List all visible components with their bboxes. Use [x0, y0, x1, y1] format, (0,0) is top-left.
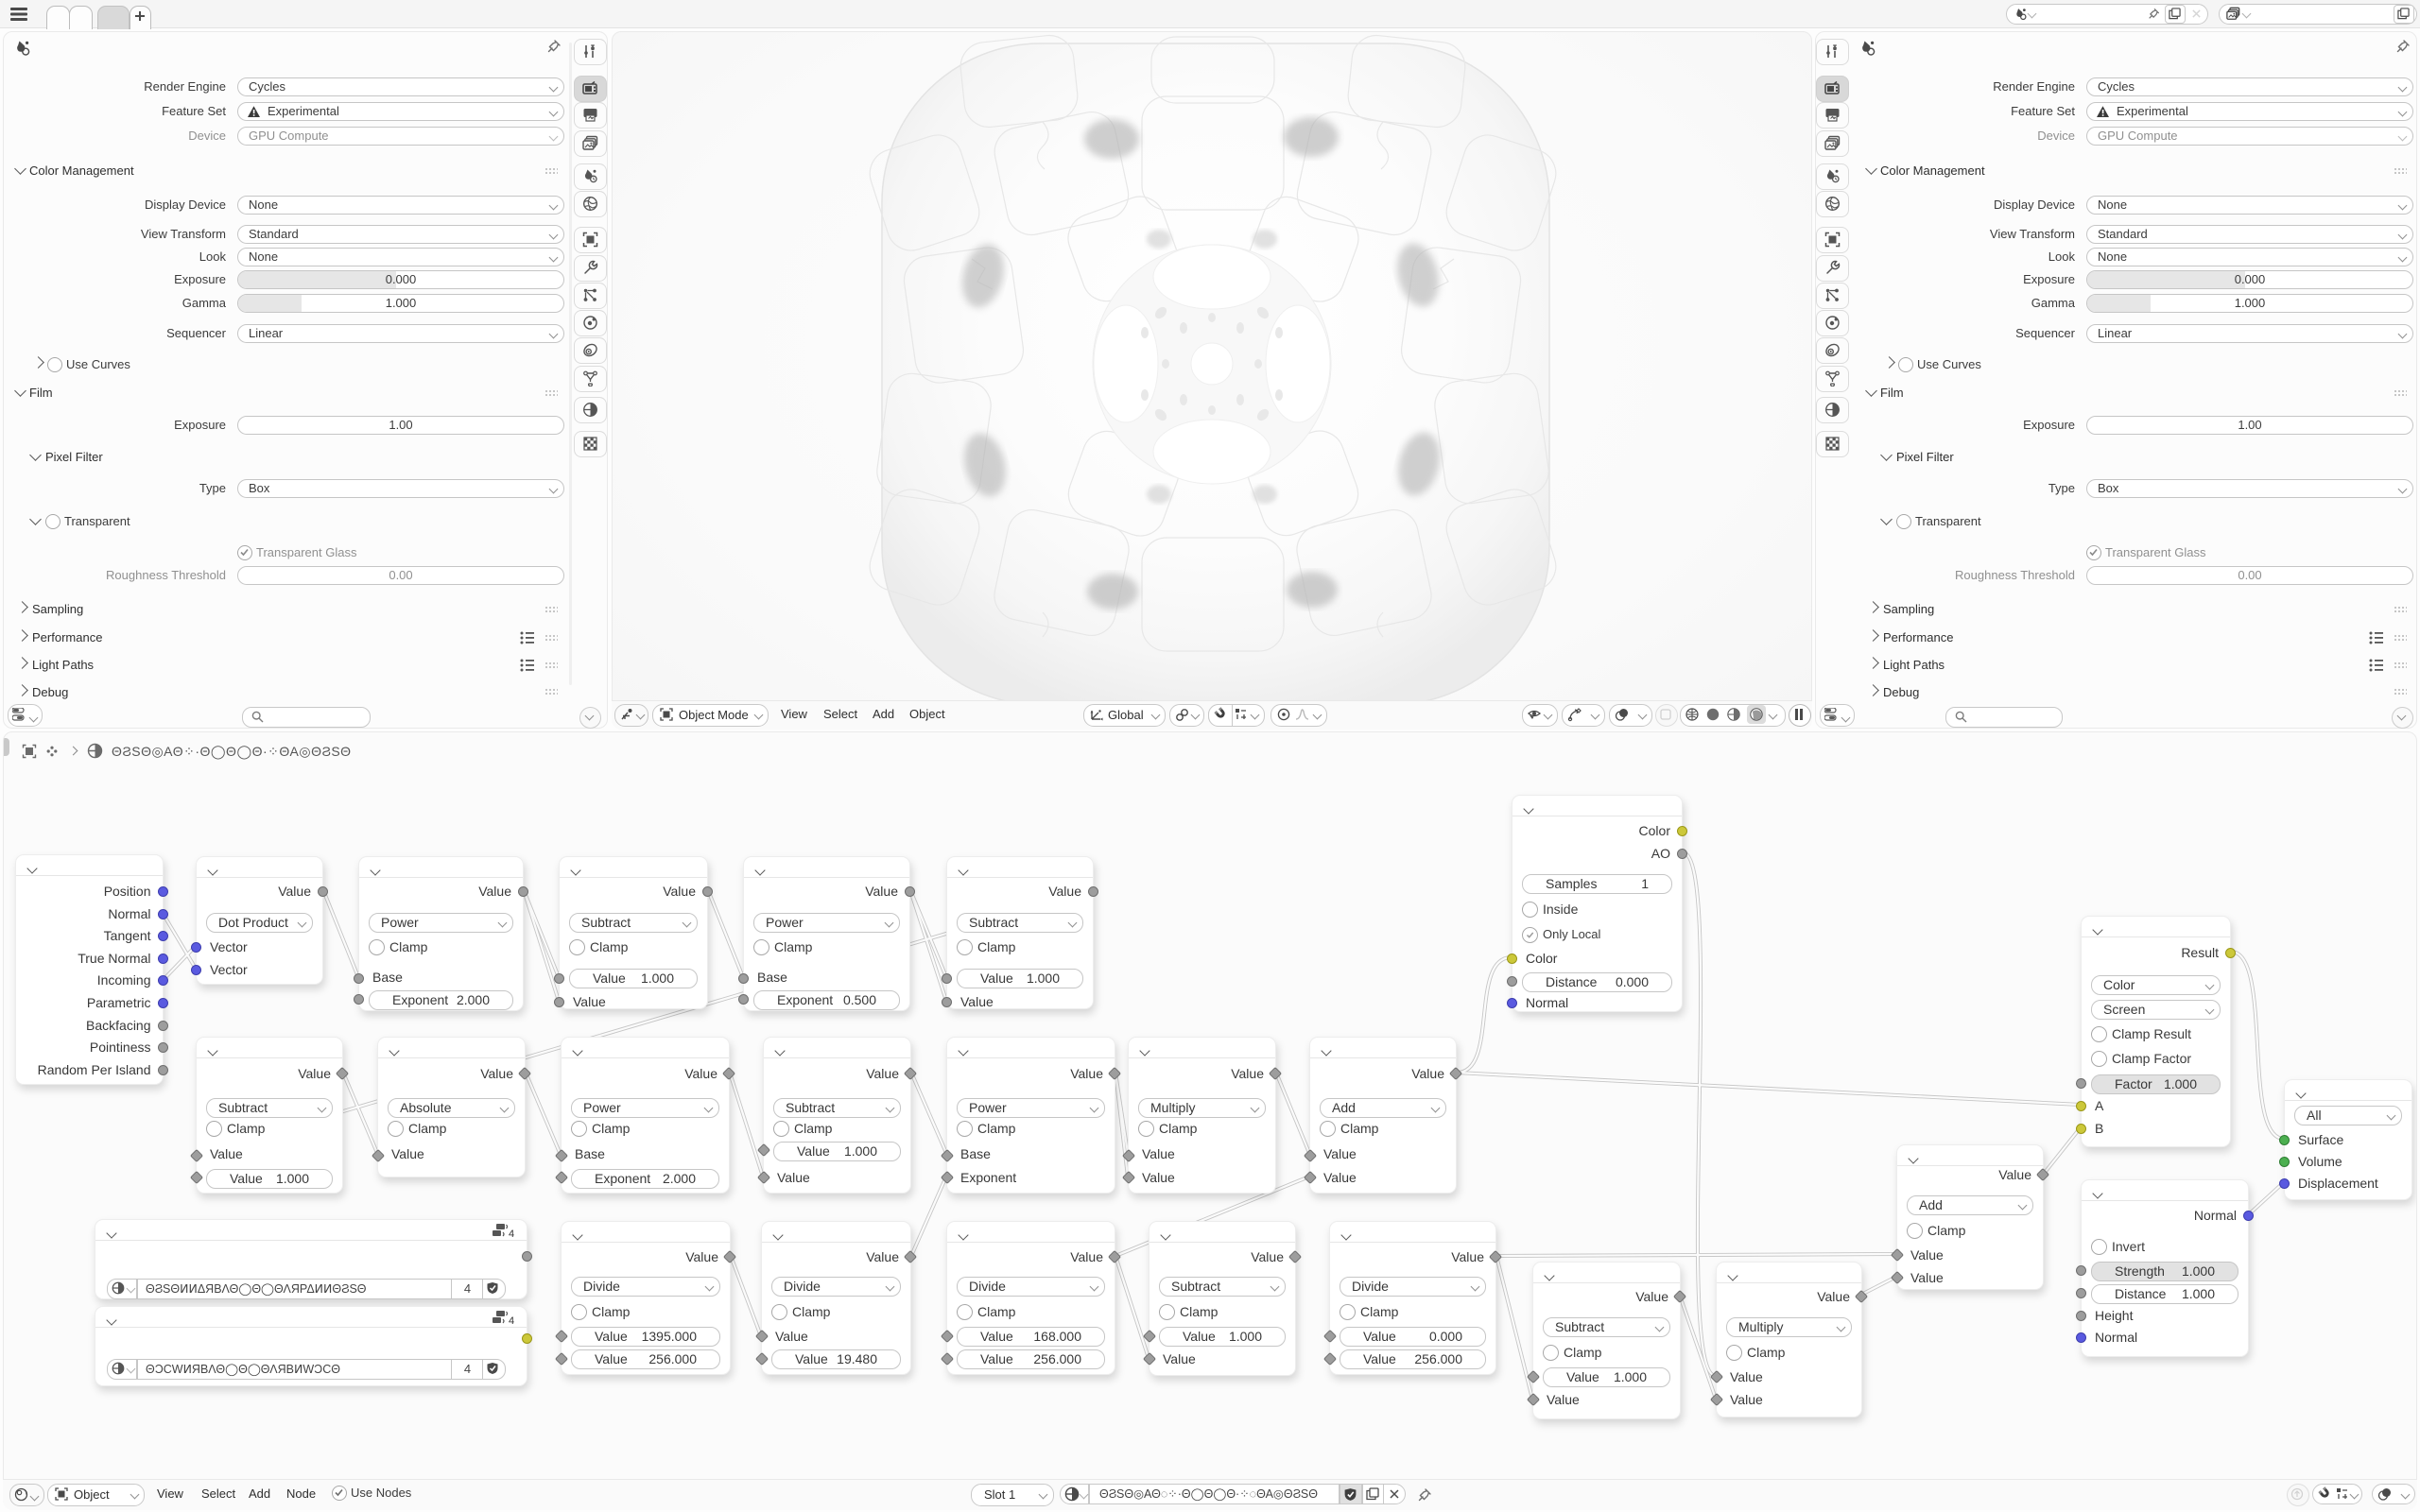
svg-text:4: 4 — [509, 1315, 514, 1326]
svg-text:4: 4 — [509, 1228, 514, 1239]
